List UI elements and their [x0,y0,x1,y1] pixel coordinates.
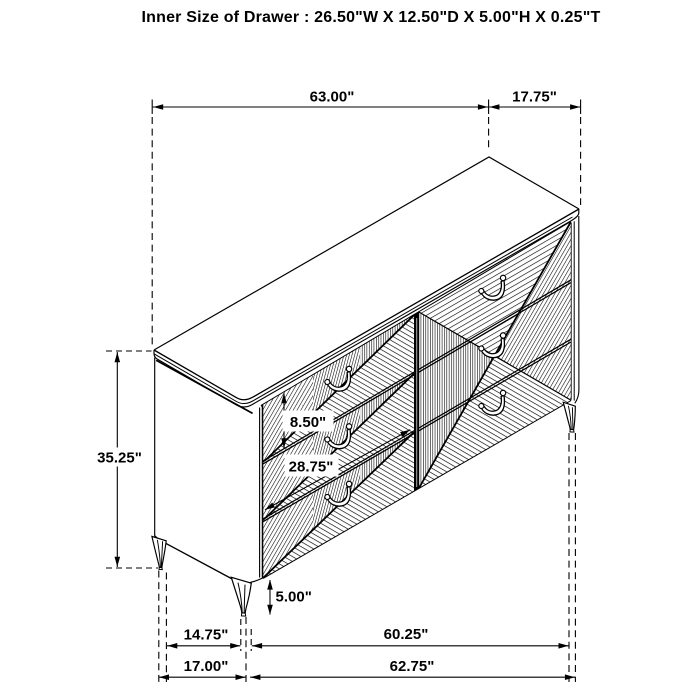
svg-text:17.00": 17.00" [184,658,229,675]
svg-text:17.75": 17.75" [512,89,557,106]
svg-text:8.50": 8.50" [290,414,326,431]
svg-text:62.75": 62.75" [390,658,435,675]
svg-text:63.00": 63.00" [310,89,355,106]
svg-text:28.75": 28.75" [289,459,334,476]
svg-text:14.75": 14.75" [184,627,229,644]
svg-text:5.00": 5.00" [276,589,312,606]
svg-text:60.25": 60.25" [384,626,429,643]
svg-text:35.25": 35.25" [97,450,142,467]
